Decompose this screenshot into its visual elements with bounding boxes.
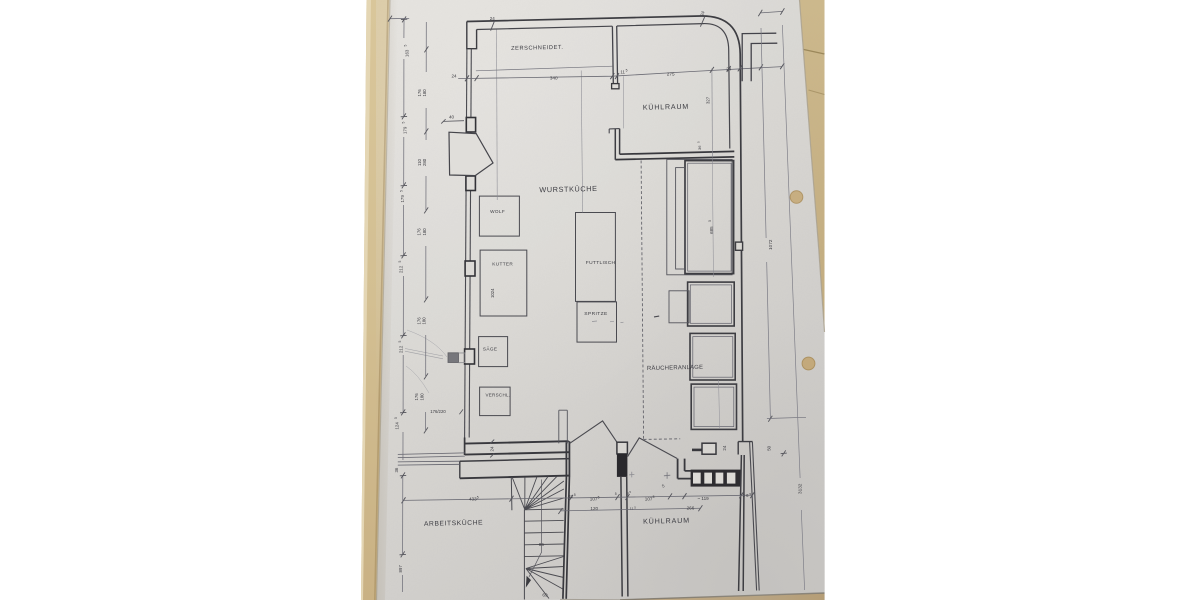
svg-text:5: 5 [653, 495, 655, 499]
svg-text:24: 24 [722, 445, 727, 450]
svg-text:180: 180 [422, 317, 427, 325]
svg-text:1072: 1072 [768, 239, 773, 250]
svg-text:897: 897 [398, 565, 403, 573]
svg-text:50: 50 [767, 445, 772, 450]
svg-text:ARBEITSKÜCHE: ARBEITSKÜCHE [424, 519, 483, 528]
svg-text:685: 685 [709, 226, 714, 234]
svg-text:176/220: 176/220 [430, 409, 446, 414]
svg-text:24: 24 [452, 73, 458, 78]
svg-text:180: 180 [422, 228, 427, 236]
svg-text:36: 36 [394, 467, 399, 472]
svg-text:SÄGE: SÄGE [483, 345, 497, 351]
svg-text:212: 212 [399, 265, 404, 273]
svg-text:176: 176 [416, 317, 421, 325]
svg-text:340: 340 [550, 75, 558, 80]
svg-text:5: 5 [402, 122, 406, 124]
svg-text:ZERSCHNEIDET.: ZERSCHNEIDET. [511, 45, 563, 52]
svg-text:5: 5 [708, 220, 712, 222]
svg-text:SPRITZE: SPRITZE [584, 311, 608, 317]
svg-text:280: 280 [422, 158, 427, 166]
svg-text:124: 124 [395, 422, 400, 430]
svg-text:5: 5 [574, 493, 576, 497]
svg-text:212: 212 [399, 345, 404, 353]
svg-text:327: 327 [705, 96, 710, 104]
svg-text:179: 179 [402, 126, 407, 134]
svg-text:11: 11 [630, 507, 634, 511]
svg-text:WOLF: WOLF [490, 209, 505, 214]
svg-text:85: 85 [539, 542, 545, 547]
svg-text:RÄUCHERANLAGE: RÄUCHERANLAGE [647, 364, 703, 372]
svg-text:~ 119: ~ 119 [697, 496, 709, 501]
svg-text:176: 176 [417, 228, 422, 236]
svg-text:3132: 3132 [798, 483, 803, 494]
svg-text:36: 36 [697, 145, 702, 150]
svg-text:VERSCHL.: VERSCHL. [485, 393, 510, 398]
svg-text:5: 5 [598, 495, 600, 499]
svg-text:179: 179 [400, 195, 405, 203]
svg-text:5: 5 [615, 492, 617, 496]
svg-text:120: 120 [590, 506, 598, 511]
svg-text:40: 40 [449, 115, 455, 120]
svg-text:24: 24 [726, 67, 731, 72]
svg-text:176: 176 [414, 393, 419, 401]
svg-text:5: 5 [626, 69, 628, 73]
svg-text:266: 266 [687, 505, 695, 510]
svg-text:FUTTLISCH: FUTTLISCH [586, 260, 616, 266]
svg-text:5: 5 [394, 417, 398, 419]
svg-text:5: 5 [404, 45, 408, 47]
svg-text:24: 24 [490, 16, 496, 21]
svg-text:69: 69 [542, 593, 548, 598]
svg-text:180: 180 [422, 89, 427, 97]
svg-text:1024: 1024 [490, 288, 495, 298]
svg-text:5: 5 [398, 261, 402, 263]
svg-text:110: 110 [417, 159, 422, 166]
svg-text:KÜHLRAUM: KÜHLRAUM [643, 517, 690, 526]
svg-text:176: 176 [417, 89, 422, 97]
svg-text:5: 5 [749, 492, 751, 496]
svg-text:KUTTER: KUTTER [492, 262, 513, 267]
svg-text:KÜHLRAUM: KÜHLRAUM [643, 103, 689, 112]
svg-text:5: 5 [398, 341, 402, 343]
svg-text:163: 163 [404, 49, 409, 57]
svg-text:180: 180 [420, 393, 425, 401]
svg-text:5: 5 [477, 495, 479, 499]
svg-text:24: 24 [490, 446, 495, 451]
svg-text:5: 5 [399, 190, 403, 192]
svg-text:275: 275 [667, 71, 675, 76]
svg-text:3 6: 3 6 [743, 493, 749, 498]
svg-text:WURSTKÜCHE: WURSTKÜCHE [539, 184, 597, 194]
